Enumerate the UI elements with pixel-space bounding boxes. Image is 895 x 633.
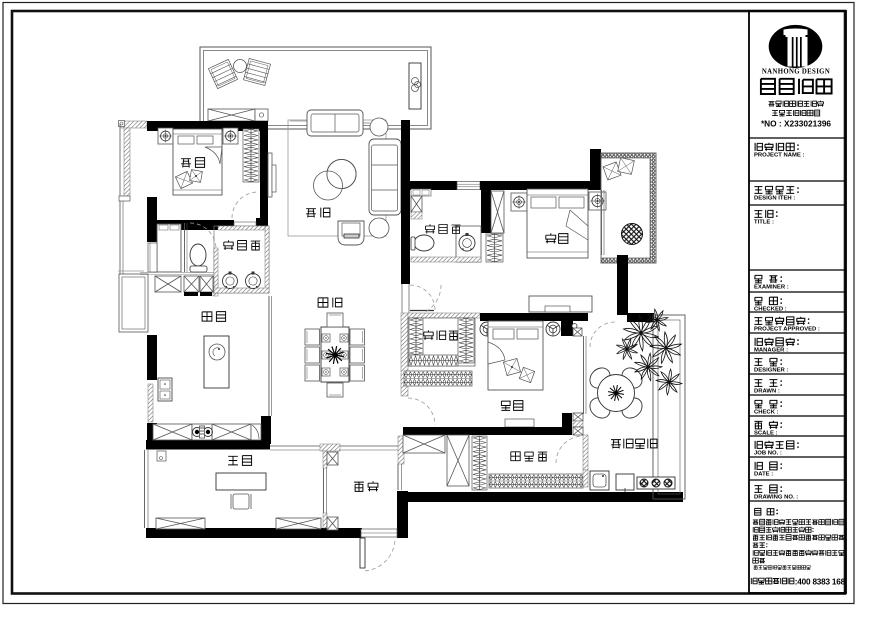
svg-text:EXAMINER :: EXAMINER :	[754, 285, 789, 291]
svg-text:NANHONG DESIGN: NANHONG DESIGN	[762, 69, 830, 76]
svg-text:DATE :: DATE :	[754, 472, 773, 478]
svg-text:CHECK :: CHECK :	[754, 410, 779, 416]
svg-text:TITLE :: TITLE :	[754, 220, 774, 226]
svg-text:PROJECT NAME :: PROJECT NAME :	[754, 153, 804, 159]
svg-text:DESIGNER :: DESIGNER :	[754, 368, 788, 374]
svg-text:DESIGN ITEH :: DESIGN ITEH :	[754, 196, 795, 202]
svg-text:*NO : X233021396: *NO : X233021396	[761, 119, 831, 129]
svg-text::400 8383 168: :400 8383 168	[795, 577, 846, 586]
svg-text:DRAWING NO. :: DRAWING NO. :	[754, 495, 798, 501]
svg-text:PROJECT APPROVED :: PROJECT APPROVED :	[754, 327, 820, 333]
svg-text:DRAWN :: DRAWN :	[754, 389, 780, 395]
svg-text:JOB NO. :: JOB NO. :	[754, 451, 782, 457]
